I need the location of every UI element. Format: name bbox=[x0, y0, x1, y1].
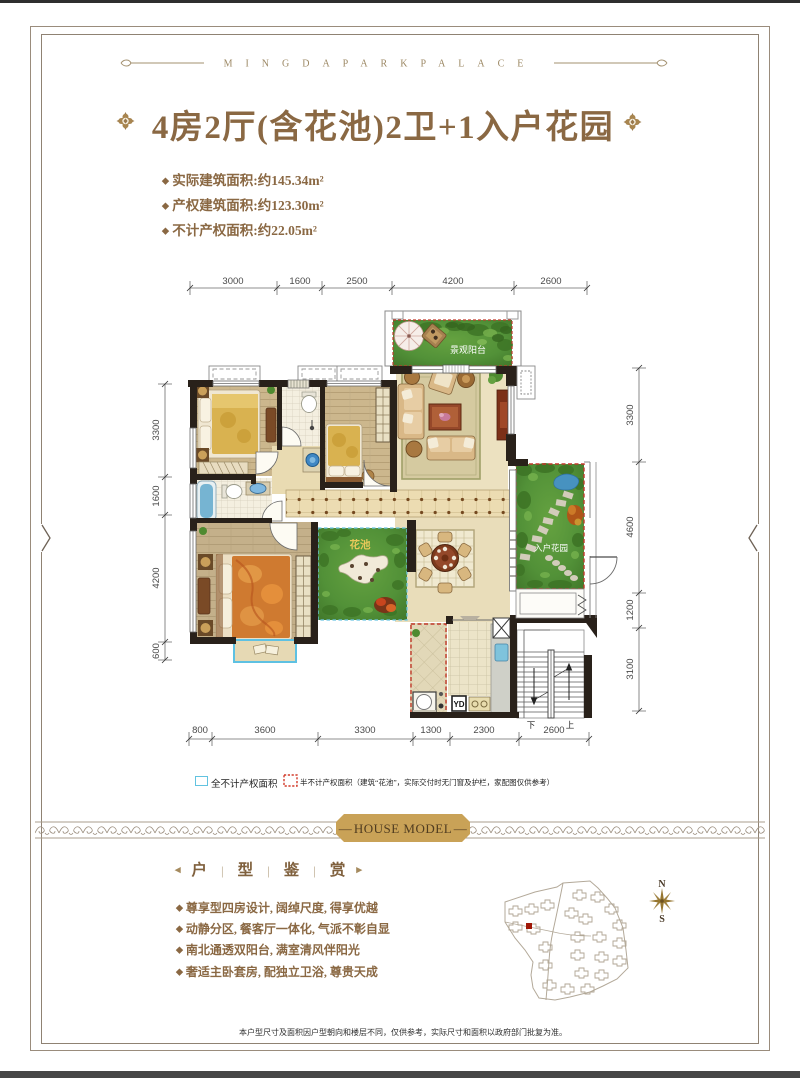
svg-text:N: N bbox=[658, 879, 666, 890]
svg-text:1200: 1200 bbox=[625, 599, 636, 620]
svg-text:3300: 3300 bbox=[354, 725, 375, 736]
svg-text:1600: 1600 bbox=[151, 485, 162, 506]
svg-text:2600: 2600 bbox=[543, 725, 564, 736]
svg-text:2600: 2600 bbox=[540, 276, 561, 287]
svg-text:3100: 3100 bbox=[625, 658, 636, 679]
svg-text:1600: 1600 bbox=[289, 276, 310, 287]
svg-text:2300: 2300 bbox=[473, 725, 494, 736]
svg-text:4600: 4600 bbox=[625, 516, 636, 537]
svg-text:2500: 2500 bbox=[346, 276, 367, 287]
svg-text:YD: YD bbox=[453, 700, 464, 709]
svg-text:3600: 3600 bbox=[254, 725, 275, 736]
svg-text:3300: 3300 bbox=[625, 404, 636, 425]
svg-text:3300: 3300 bbox=[151, 419, 162, 440]
svg-text:600: 600 bbox=[151, 643, 162, 659]
svg-text:MINGDAPARKPALACE: MINGDAPARKPALACE bbox=[224, 59, 537, 70]
svg-text:4200: 4200 bbox=[151, 567, 162, 588]
svg-text:800: 800 bbox=[192, 725, 208, 736]
svg-text:下: 下 bbox=[527, 720, 536, 730]
svg-text:入户花园: 入户花园 bbox=[534, 543, 568, 553]
svg-text:S: S bbox=[659, 914, 665, 924]
svg-text:上: 上 bbox=[566, 720, 575, 730]
svg-text:1300: 1300 bbox=[420, 725, 441, 736]
svg-text:3000: 3000 bbox=[222, 276, 243, 287]
svg-text:4200: 4200 bbox=[442, 276, 463, 287]
svg-text:花池: 花池 bbox=[350, 538, 371, 551]
svg-text:景观阳台: 景观阳台 bbox=[450, 344, 486, 355]
